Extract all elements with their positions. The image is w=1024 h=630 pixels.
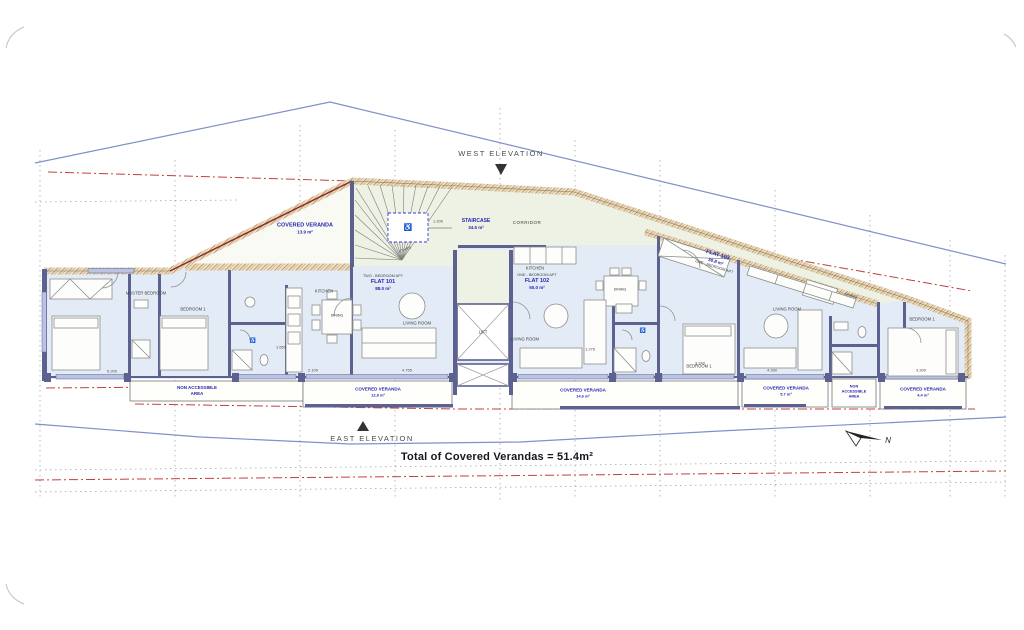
cv101-name: COVERED VERANDA — [355, 386, 401, 392]
staircase-area: 34.5 m² — [462, 224, 491, 230]
na-left-line2: AREA — [177, 391, 217, 397]
dim-flat102: 1.276 — [585, 346, 595, 351]
cv103b-name: COVERED VERANDA — [900, 386, 946, 392]
dim-bath101: 1.650 — [276, 344, 286, 349]
west-elevation-marker-icon — [495, 164, 507, 175]
cv102-name: COVERED VERANDA — [560, 387, 606, 393]
flat-101-area: 88.0 m² — [363, 286, 403, 292]
cv101-area: 12.8 m² — [355, 392, 401, 397]
living-101-label: LIVING ROOM — [403, 320, 431, 325]
dim-bedroom102: 3.240 — [695, 360, 705, 365]
east-elevation-label: EAST ELEVATION — [330, 434, 414, 444]
covered-veranda-top-label: COVERED VERANDA 13.9 m² — [277, 223, 333, 236]
non-accessible-right-label: NON ACCESSIBLE AREA — [842, 384, 866, 399]
kitchen-101-label: KITCHEN — [315, 288, 333, 293]
lift-shaft — [457, 304, 509, 386]
cv103a-name: COVERED VERANDA — [763, 385, 809, 391]
flat-102-name: FLAT 102 — [517, 278, 556, 285]
floor-plan-drawing — [0, 0, 1024, 630]
east-elevation-marker-icon — [357, 421, 369, 431]
dim-stairs: 1.200 — [433, 218, 443, 223]
covered-veranda-102-label: COVERED VERANDA 14.6 m² — [560, 387, 606, 398]
covered-veranda-103b-label: COVERED VERANDA 4.4 m² — [900, 386, 946, 397]
dim-living101: 4.755 — [402, 367, 412, 372]
staircase-name: STAIRCASE — [462, 218, 491, 225]
dining-101-label: DINING — [331, 314, 344, 319]
covered-veranda-103a-label: COVERED VERANDA 5.7 m² — [763, 385, 809, 396]
cv103a-area: 5.7 m² — [763, 391, 809, 396]
na-left-line1: NON ACCESSIBLE — [177, 385, 217, 391]
covered-veranda-101-label: COVERED VERANDA 12.8 m² — [355, 386, 401, 397]
flat-102-area: 50.0 m² — [517, 285, 556, 291]
flat-101-name: FLAT 101 — [363, 279, 403, 286]
verandas — [130, 379, 966, 409]
living-103-label: LIVING ROOM — [773, 306, 801, 311]
veranda-total-note: Total of Covered Verandas = 51.4m² — [401, 450, 593, 464]
master-bedroom-label: MASTER BEDROOM — [126, 290, 166, 295]
non-accessible-left-label: NON ACCESSIBLE AREA — [177, 385, 217, 397]
kitchen-102-label: KITCHEN — [526, 265, 544, 270]
dim-kitchen101: 2.100 — [308, 367, 318, 372]
lift-label: LIFT — [479, 329, 488, 334]
cv103b-area: 4.4 m² — [900, 392, 946, 397]
bedroom1-103-label: BEDROOM 1 — [909, 316, 934, 321]
wheelchair-icon: ♿ — [250, 338, 256, 345]
west-elevation-label: WEST ELEVATION — [458, 149, 544, 159]
flat-101-label: TWO - BEDROOM APT FLAT 101 88.0 m² — [363, 274, 403, 292]
bedroom1-101-label: BEDROOM 1 — [180, 306, 205, 311]
cv102-area: 14.6 m² — [560, 393, 606, 398]
dim-living103: 4.330 — [767, 367, 777, 372]
north-label: N — [885, 436, 891, 446]
na-right-line3: AREA — [842, 395, 866, 400]
corridor-label: CORRIDOR — [513, 220, 542, 226]
wheelchair-icon: ♿ — [404, 223, 413, 232]
dining-102-label: DINING — [614, 288, 627, 293]
veranda-area: 13.9 m² — [277, 230, 333, 236]
north-arrow-icon — [846, 431, 882, 446]
flat-102-label: ONE - BEDROOM APT FLAT 102 50.0 m² — [517, 273, 556, 291]
veranda-name: COVERED VERANDA — [277, 223, 333, 230]
dim-master: 5.200 — [107, 368, 117, 373]
living-102-label: LIVING ROOM — [511, 336, 539, 341]
floor-plan-canvas: WEST ELEVATION EAST ELEVATION Total of C… — [0, 0, 1024, 630]
staircase-label: STAIRCASE 34.5 m² — [462, 218, 491, 230]
dim-bedroom103: 3.200 — [916, 367, 926, 372]
wheelchair-icon: ♿ — [640, 328, 646, 335]
